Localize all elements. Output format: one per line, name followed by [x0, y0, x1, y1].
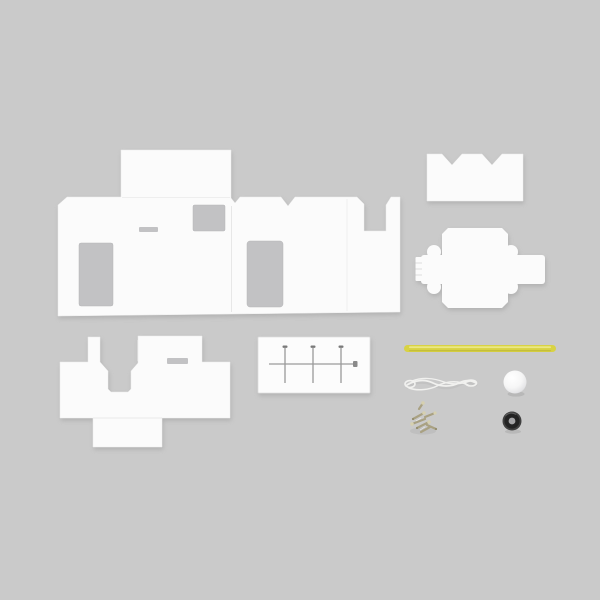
pin-head	[283, 346, 288, 348]
grommet-hole	[509, 418, 516, 425]
pin-head	[311, 346, 316, 348]
notched-roof-panel	[427, 154, 523, 201]
window-cutout-left	[79, 243, 113, 306]
axle-pin-card	[258, 337, 370, 393]
pin-head	[339, 346, 344, 348]
base-slot-cutout	[167, 358, 188, 364]
straw-shade	[409, 350, 551, 351]
box-template-arm	[421, 255, 545, 284]
ball	[504, 371, 527, 394]
window-cutout-top	[193, 205, 225, 231]
notched-panel-outline	[427, 154, 523, 201]
straw-highlight	[409, 346, 551, 348]
photo-stage	[0, 0, 600, 600]
axle-rod-head	[353, 361, 358, 367]
craft-kit-photo	[0, 0, 600, 600]
window-cutout-right	[247, 241, 283, 307]
yellow-straw	[404, 345, 556, 352]
vent-slot-cutout	[139, 227, 158, 232]
